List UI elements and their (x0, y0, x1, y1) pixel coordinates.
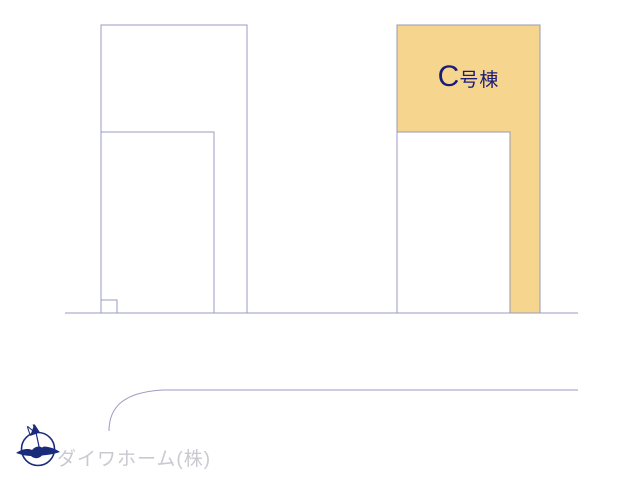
building-c-label: C号棟 (397, 62, 540, 92)
site-plan-drawing (0, 0, 640, 480)
road-curve-line (109, 390, 578, 431)
building-c-label-letter: C (438, 60, 460, 93)
site-plan-canvas: C号棟 N ダイワホーム(株) (0, 0, 640, 480)
left-plot-corner-square (101, 300, 117, 313)
left-plot-inner-line (101, 132, 214, 313)
north-label: N (25, 421, 39, 438)
building-c-label-suffix: 号棟 (459, 70, 499, 91)
left-plot-outline (101, 25, 247, 313)
company-name: ダイワホーム(株) (57, 444, 211, 471)
compass-north-icon: N (14, 420, 62, 472)
